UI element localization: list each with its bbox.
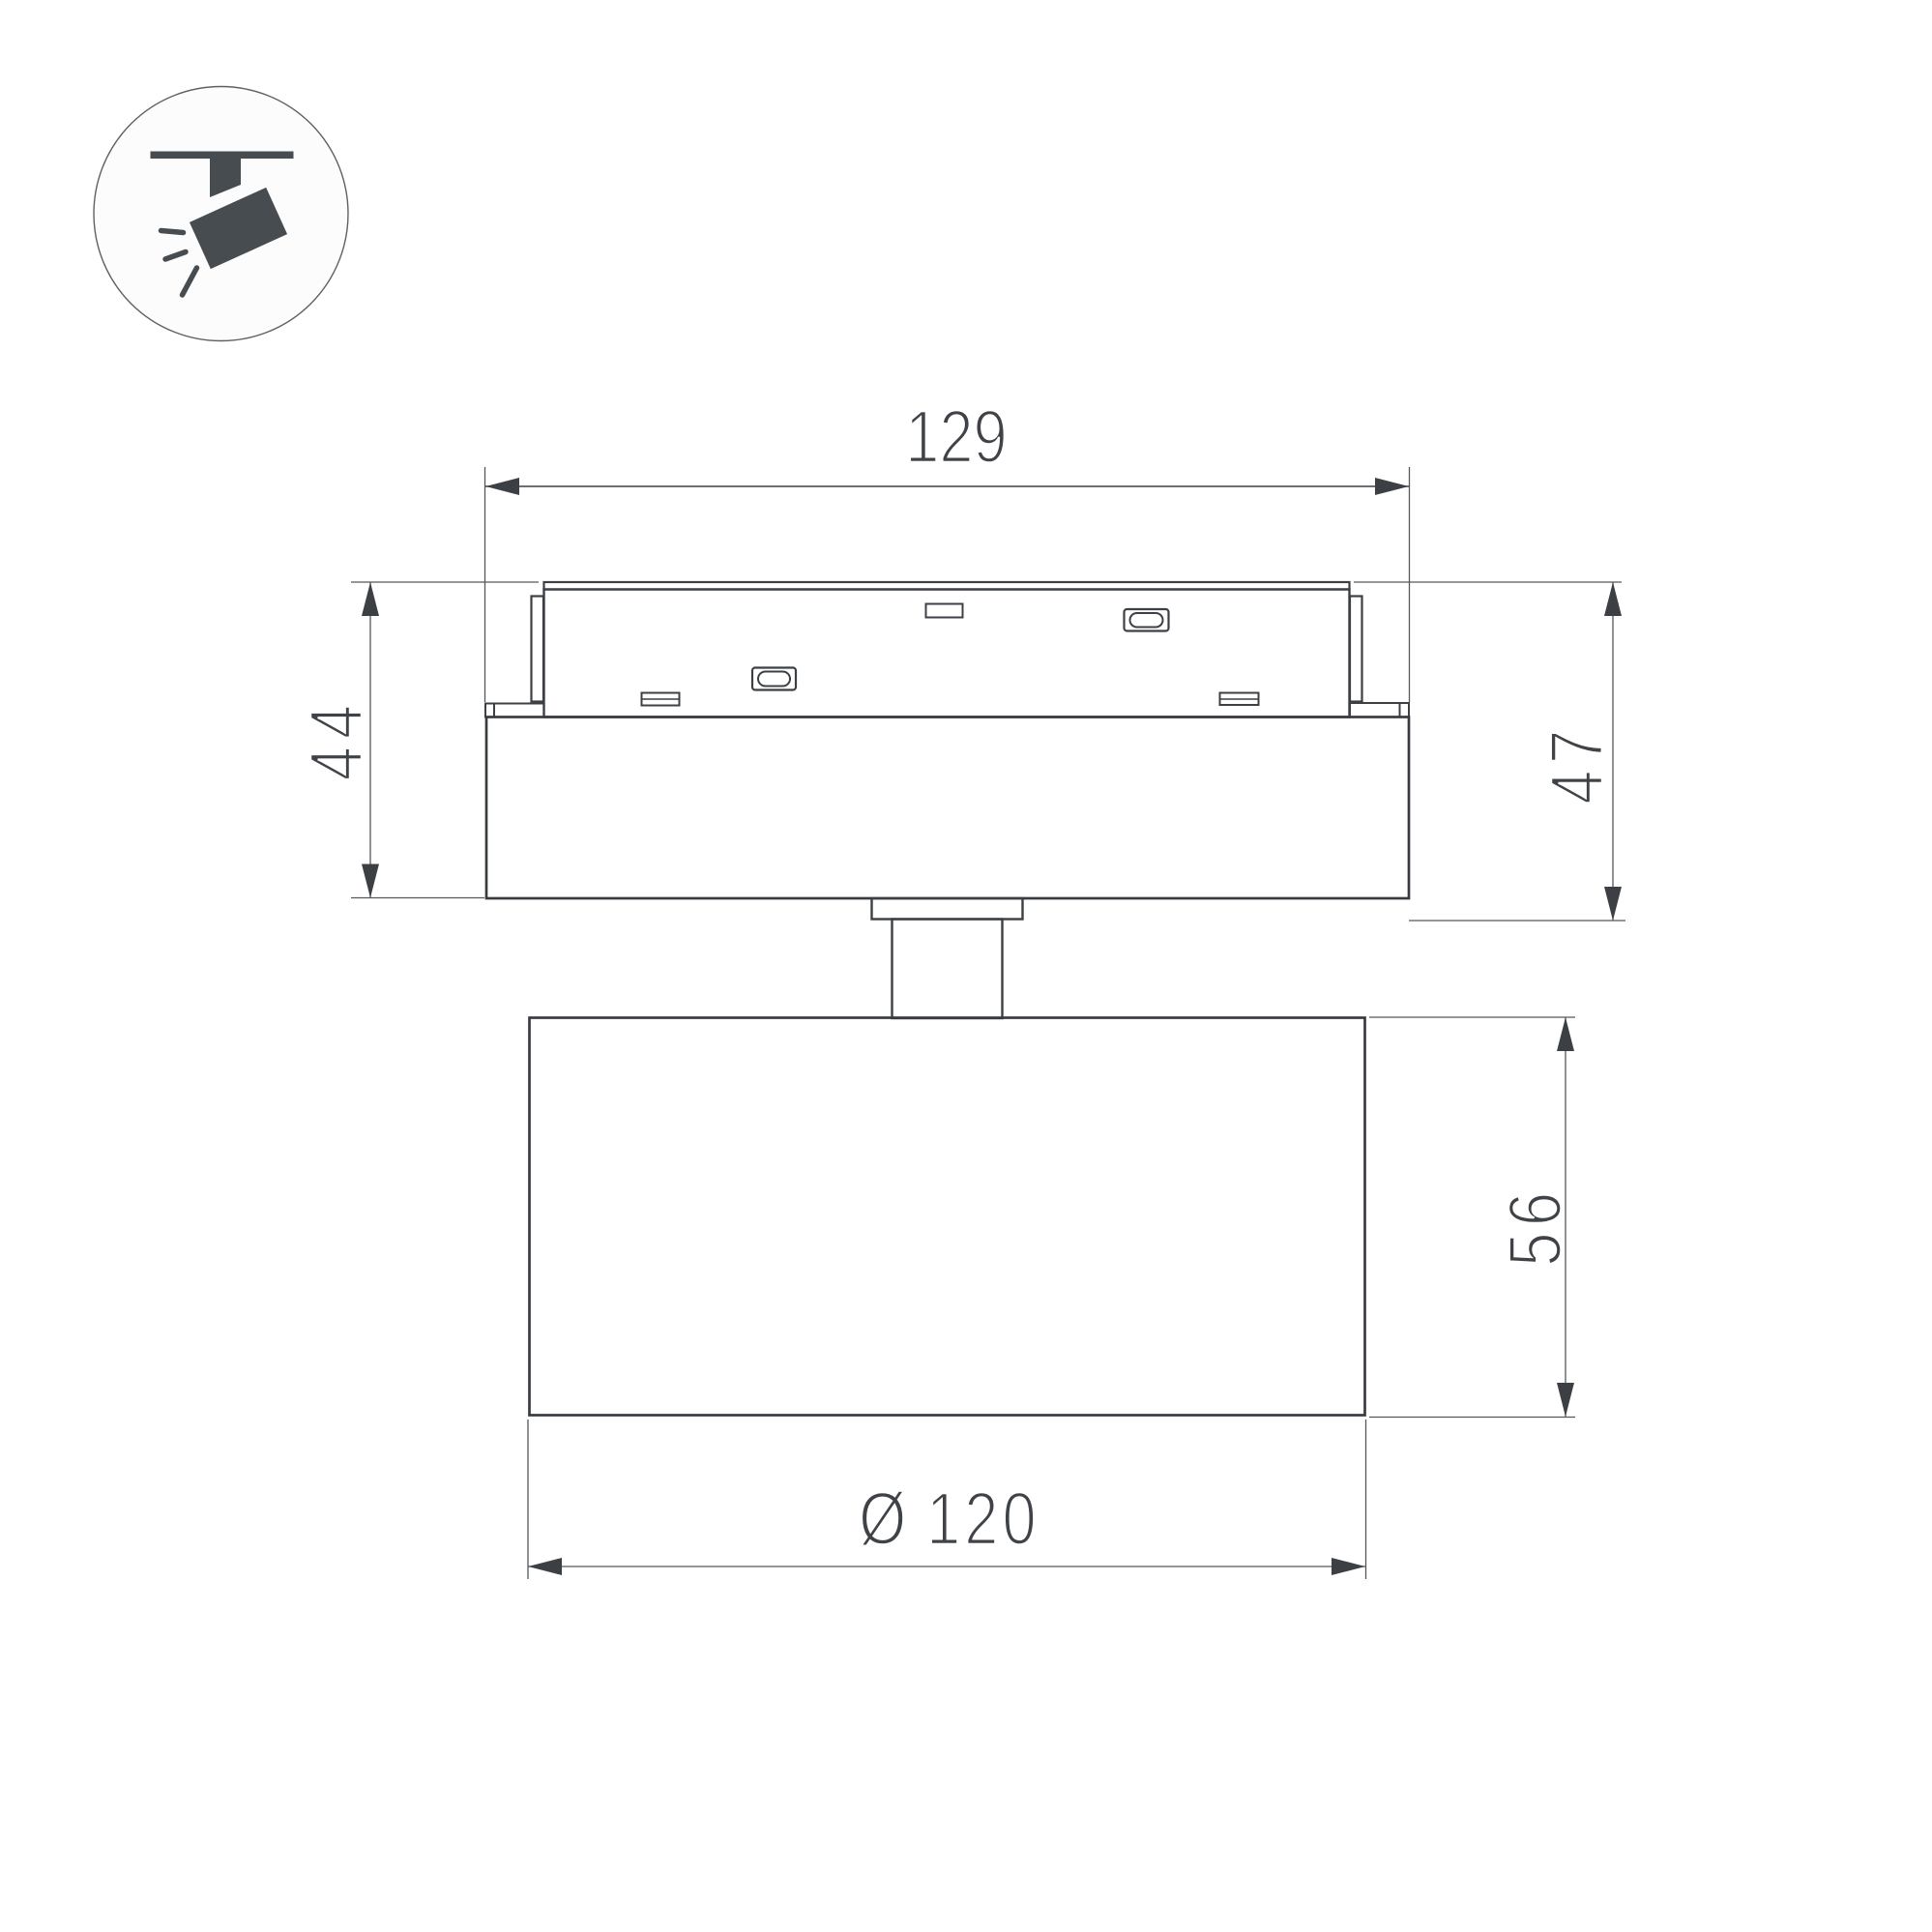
svg-text:56: 56 <box>1493 1186 1576 1266</box>
svg-text:129: 129 <box>905 395 1007 478</box>
svg-text:Ø 120: Ø 120 <box>859 1477 1040 1560</box>
svg-text:44: 44 <box>294 697 377 781</box>
svg-text:47: 47 <box>1535 723 1618 804</box>
